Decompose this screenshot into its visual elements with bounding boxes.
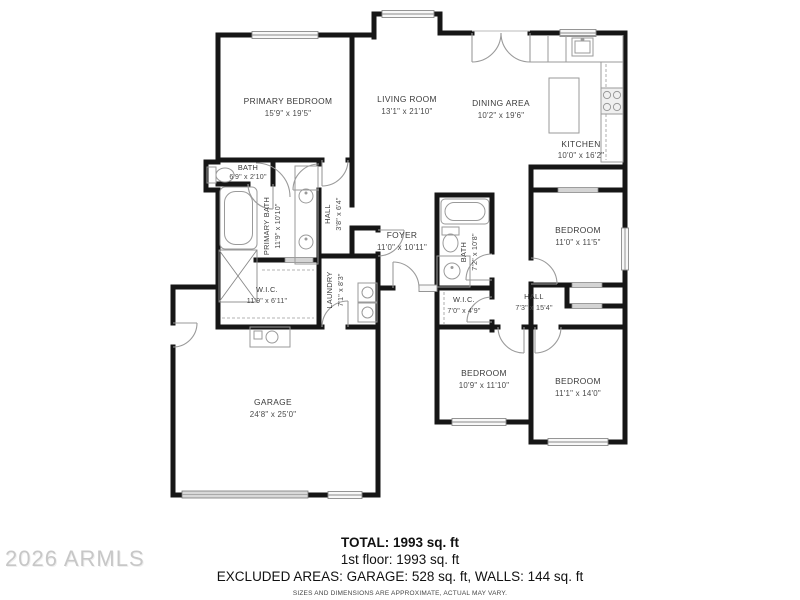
garage-door [182, 491, 308, 498]
slider-closet-a [572, 283, 602, 288]
floor-plan-drawing: PRIMARY BEDROOM 15'9" x 19'5" LIVING ROO… [0, 0, 800, 600]
svg-text:10'0" x 16'2": 10'0" x 16'2" [558, 151, 605, 160]
label-wic-hall: W.I.C. 7'0" x 4'9" [447, 295, 480, 315]
kitchen-counter-right [601, 62, 623, 162]
label-laundry: LAUNDRY 7'1" x 8'3" [325, 271, 345, 308]
label-hall-primary: HALL 3'8" x 6'4" [323, 197, 343, 230]
label-kitchen: KITCHEN 10'0" x 16'2" [558, 139, 605, 160]
kitchen-counter-top [530, 36, 623, 63]
label-living-room: LIVING ROOM 13'1" x 21'10" [377, 94, 437, 116]
wall-closet-divider [567, 285, 625, 306]
armls-watermark: 2026 ARMLS [5, 546, 145, 572]
label-bedroom-ne: BEDROOM 11'0" x 11'5" [555, 225, 601, 247]
svg-text:7'3" x 15'4": 7'3" x 15'4" [515, 304, 553, 312]
svg-text:KITCHEN: KITCHEN [561, 139, 600, 149]
water-heater-platform [250, 327, 290, 347]
svg-text:24'8" x 25'0": 24'8" x 25'0" [250, 410, 297, 419]
svg-text:3'8" x 6'4": 3'8" x 6'4" [335, 197, 343, 230]
svg-text:11'9" x 6'11": 11'9" x 6'11" [247, 297, 288, 305]
vanity-primary [295, 166, 318, 264]
floor-plan-page: PRIMARY BEDROOM 15'9" x 19'5" LIVING ROO… [0, 0, 800, 600]
front-door [393, 262, 419, 288]
svg-text:6'9" x 2'10": 6'9" x 2'10" [229, 173, 267, 181]
svg-text:11'1" x 14'0": 11'1" x 14'0" [555, 389, 601, 398]
svg-text:DINING AREA: DINING AREA [472, 98, 530, 108]
label-wic-primary: W.I.C. 11'9" x 6'11" [247, 285, 288, 305]
door-primary-bath [293, 164, 319, 190]
exterior-walls [173, 14, 625, 495]
kitchen-island [549, 78, 579, 133]
svg-text:W.I.C.: W.I.C. [453, 295, 475, 304]
label-primary-toilet-bath: BATH 6'9" x 2'10" [229, 163, 267, 181]
label-garage: GARAGE 24'8" x 25'0" [250, 397, 297, 419]
door-garage-side [173, 323, 197, 347]
door-bedroom-ne [531, 258, 557, 284]
svg-text:BEDROOM: BEDROOM [555, 225, 601, 235]
disclaimer-text: SIZES AND DIMENSIONS ARE APPROXIMATE, AC… [0, 590, 800, 597]
washer-dryer [358, 283, 377, 322]
slider-wic-primary [285, 258, 313, 263]
svg-text:PRIMARY BATH: PRIMARY BATH [262, 197, 271, 255]
wall-garage-left [173, 287, 218, 495]
slider-closet-b [572, 304, 602, 309]
room-labels: PRIMARY BEDROOM 15'9" x 19'5" LIVING ROO… [229, 94, 604, 419]
svg-text:10'2" x 19'6": 10'2" x 19'6" [478, 111, 525, 120]
windows [252, 11, 629, 499]
wall-kitchen-south [531, 167, 625, 190]
svg-text:10'9" x 11'10": 10'9" x 11'10" [459, 381, 510, 390]
label-primary-bath: PRIMARY BATH 11'9" x 10'10" [262, 197, 282, 255]
svg-text:LAUNDRY: LAUNDRY [325, 271, 334, 308]
slider-closet-ne [558, 188, 598, 193]
svg-text:11'0" x 10'11": 11'0" x 10'11" [377, 243, 427, 252]
svg-text:PRIMARY BEDROOM: PRIMARY BEDROOM [244, 96, 333, 106]
svg-text:7'2" x 10'8": 7'2" x 10'8" [471, 233, 479, 271]
svg-text:BATH: BATH [459, 242, 468, 262]
svg-text:13'1" x 21'10": 13'1" x 21'10" [381, 107, 432, 116]
label-bath-hall: BATH 7'2" x 10'8" [459, 233, 479, 271]
svg-text:GARAGE: GARAGE [254, 397, 292, 407]
door-bedroom-s [498, 327, 524, 353]
svg-text:BEDROOM: BEDROOM [461, 368, 507, 378]
range-stove [601, 88, 623, 114]
wall-garage-north [218, 287, 378, 327]
svg-text:BEDROOM: BEDROOM [555, 376, 601, 386]
toilet-hall [442, 227, 459, 252]
door-bedroom-se [535, 327, 561, 353]
sidelite-entry [419, 285, 437, 292]
svg-text:7'0" x 4'9": 7'0" x 4'9" [447, 307, 480, 315]
closet-rods-primary-wic [222, 270, 314, 318]
svg-text:W.I.C.: W.I.C. [256, 285, 278, 294]
svg-text:7'1" x 8'3": 7'1" x 8'3" [337, 273, 345, 306]
svg-text:LIVING ROOM: LIVING ROOM [377, 94, 437, 104]
svg-text:FOYER: FOYER [387, 230, 418, 240]
label-bedroom-s: BEDROOM 10'9" x 11'10" [459, 368, 510, 390]
svg-text:HALL: HALL [323, 204, 332, 224]
svg-text:15'9" x 19'5": 15'9" x 19'5" [265, 109, 312, 118]
french-doors-dining [472, 31, 530, 62]
svg-text:HALL: HALL [524, 292, 544, 301]
label-bedroom-se: BEDROOM 11'1" x 14'0" [555, 376, 601, 398]
svg-text:BATH: BATH [238, 163, 258, 172]
svg-text:11'0" x 11'5": 11'0" x 11'5" [555, 238, 600, 247]
svg-text:11'9" x 10'10": 11'9" x 10'10" [274, 203, 282, 248]
label-dining-area: DINING AREA 10'2" x 19'6" [472, 98, 530, 120]
label-hall-bedrooms: HALL 7'3" x 15'4" [515, 292, 553, 312]
bathtub-hall [441, 199, 489, 224]
label-primary-bedroom: PRIMARY BEDROOM 15'9" x 19'5" [244, 96, 333, 118]
linen-closet-x [219, 250, 257, 302]
door-primary-bedroom [322, 160, 348, 186]
